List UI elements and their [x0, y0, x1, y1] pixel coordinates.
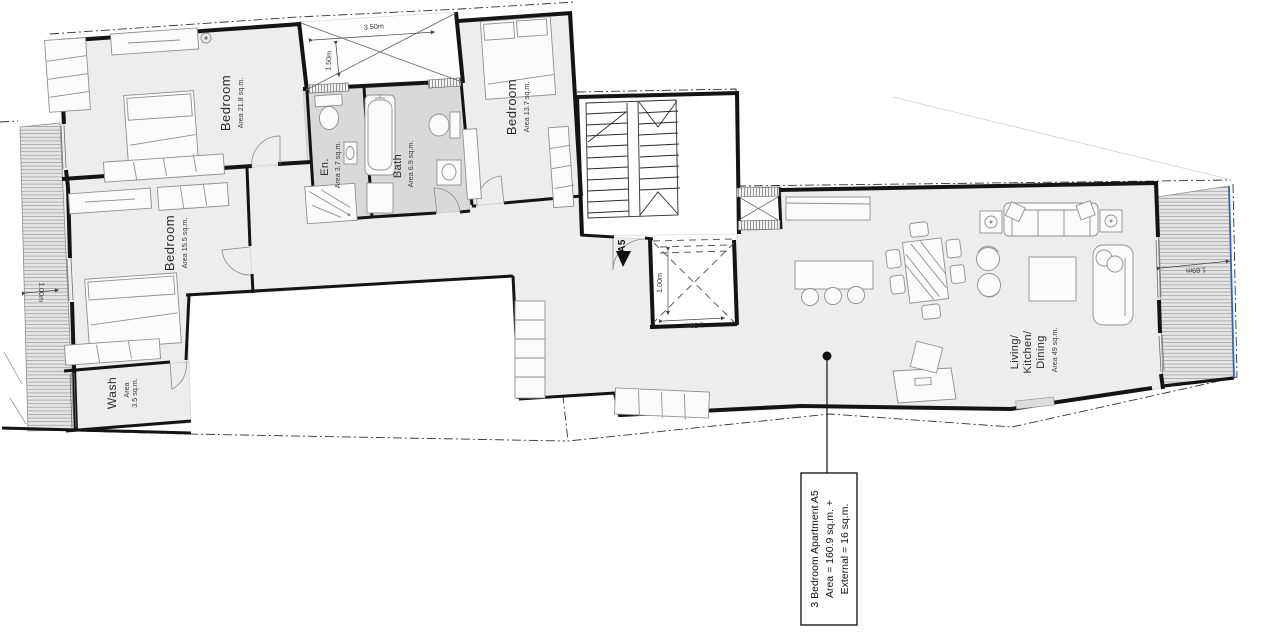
- lightwell-open-top: [653, 239, 734, 241]
- kitchen-island: [795, 261, 873, 289]
- floor-plan-page: 3.50m 1.50m 1.00m 1.59m 1.00m 1.89m Bedr…: [0, 0, 1280, 640]
- terrace-window-left: [308, 83, 349, 93]
- stool: [848, 287, 865, 304]
- wash-area-value: 3.5 sq.m.: [130, 378, 139, 408]
- chair: [885, 249, 901, 269]
- small-shaft-louver-top: [737, 187, 779, 197]
- toilet-tank: [315, 94, 343, 107]
- bedroom2-label: Bedroom: [504, 79, 519, 135]
- wardrobe: [157, 183, 228, 211]
- bedroom2-area-label: Area 13.7 sq.m.: [522, 82, 531, 133]
- lightwell-dashed-edge: [660, 245, 728, 253]
- monitor: [915, 378, 931, 386]
- kitchen-counter: [786, 197, 870, 220]
- double-bed: [124, 91, 199, 164]
- living-label-line2: Kitchen/: [1022, 330, 1034, 373]
- pillow: [1107, 256, 1123, 272]
- toilet-icon: [429, 114, 449, 136]
- toilet-tank: [450, 112, 460, 138]
- bedroom3-label: Bedroom: [162, 215, 177, 271]
- living-label-line1: Living/: [1009, 334, 1021, 369]
- chair: [946, 239, 962, 259]
- annotation-line2: Area = 160.9 sq.m. +: [824, 500, 836, 598]
- chair: [890, 275, 906, 295]
- stool: [825, 288, 842, 305]
- cabinet: [367, 183, 393, 213]
- stool: [802, 289, 819, 306]
- chair: [909, 222, 929, 238]
- double-bed: [85, 273, 182, 349]
- chair: [921, 304, 941, 320]
- stairwell-floor: [577, 93, 739, 236]
- dim-lightwell-width: 1.59m: [684, 321, 704, 331]
- armchair: [977, 248, 1000, 271]
- annotation-line3: External = 16 sq.m.: [839, 504, 851, 595]
- dim-left-balcony: 1.00m: [37, 282, 47, 302]
- dim-terrace-depth: 1.50m: [323, 51, 333, 71]
- bedroom3-area-label: Area 15.5 sq.m.: [180, 218, 189, 269]
- small-shaft-louver-bottom: [738, 220, 780, 230]
- bedroom1-label: Bedroom: [218, 75, 233, 131]
- leader-dot: [823, 352, 832, 361]
- shower-icon: [305, 183, 357, 223]
- wash-label: Wash: [105, 377, 119, 409]
- dim-terrace-width: 3.50m: [364, 21, 385, 31]
- right-balcony-floor: [1157, 186, 1234, 386]
- ensuite-label: En.: [319, 158, 331, 176]
- toilet-icon: [320, 107, 339, 130]
- ensuite-area-label: Area 3.7 sq.m.: [333, 142, 342, 189]
- dim-lightwell-depth: 1.00m: [655, 273, 664, 293]
- dim-right-balcony: 1.89m: [1186, 265, 1206, 275]
- desk: [893, 368, 956, 403]
- bath-label: Bath: [392, 154, 404, 178]
- bath-area-label: Area 6.9 sq.m.: [406, 141, 415, 188]
- hall-wardrobe-column: [515, 301, 545, 398]
- annotation-line1: 3 Bedroom Apartment A5: [809, 490, 821, 607]
- bedroom1-area-label: Area 21.8 sq.m.: [236, 78, 245, 129]
- floor-plan-drawing: 3.50m 1.50m 1.00m 1.59m 1.00m 1.89m Bedr…: [0, 0, 1280, 640]
- lightwell-cross: [654, 243, 734, 322]
- coffee-table: [1029, 257, 1076, 301]
- wardrobe: [45, 38, 91, 113]
- chair: [950, 264, 966, 284]
- bathtub-icon: [365, 95, 395, 175]
- living-area-label: Area 49 sq.m.: [1050, 328, 1059, 373]
- entrance-label: A5: [617, 239, 628, 253]
- living-label-line3: Dining: [1035, 335, 1047, 369]
